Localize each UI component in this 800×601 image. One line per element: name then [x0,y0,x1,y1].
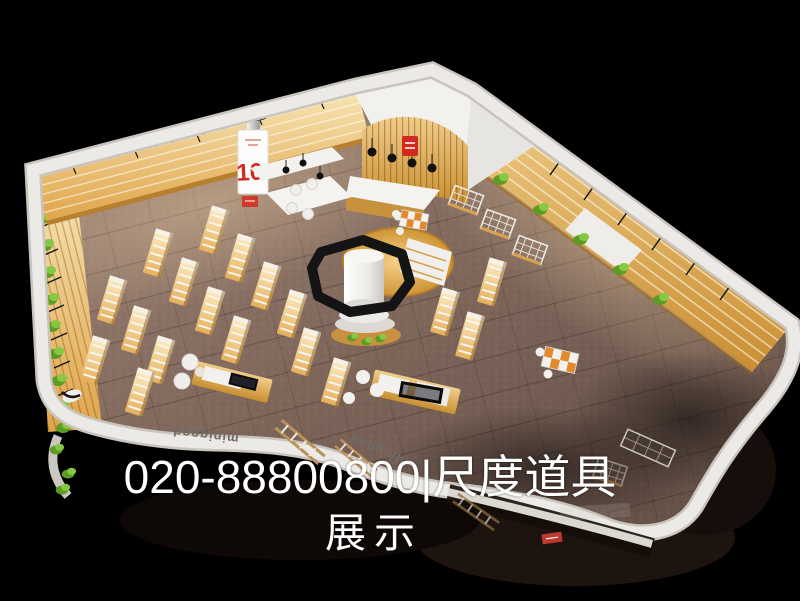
lounge-chair [182,354,198,370]
poster-canvas: 10. [0,0,800,601]
caption-phone-line: 020-88800800|尺度道具 [0,441,770,507]
lounge-chair [174,373,190,389]
caption-subtitle: 展示 [0,499,774,559]
red-wall-sign [402,136,418,156]
white-cylinder-display [344,256,384,306]
white-stool [370,383,384,397]
white-stool [343,392,355,404]
white-stool [356,370,370,384]
